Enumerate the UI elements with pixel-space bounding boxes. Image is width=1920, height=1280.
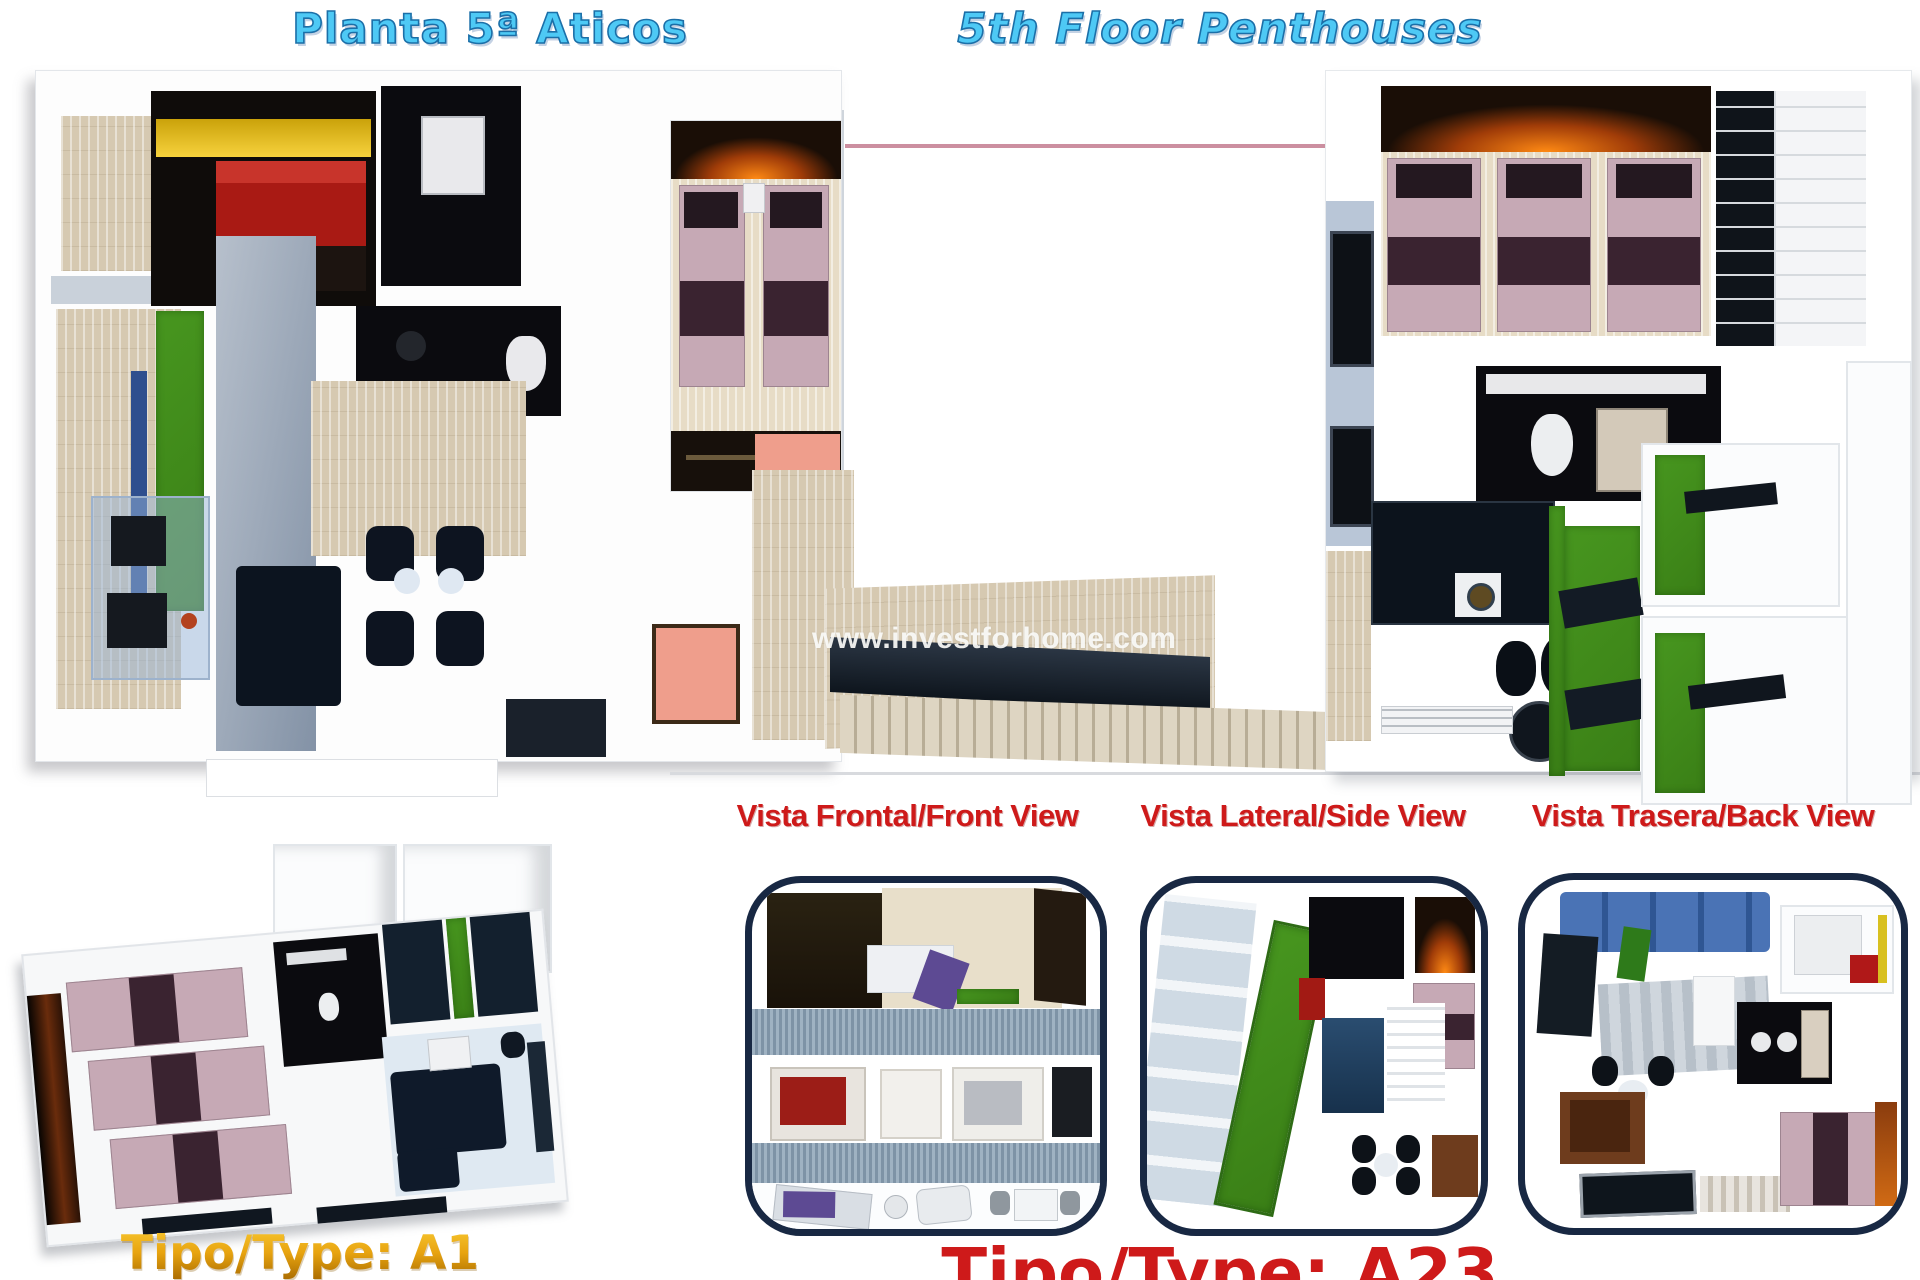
right-twin-bedroom [1381, 86, 1711, 336]
gold-light-strip [156, 119, 371, 157]
twin-bed [1607, 158, 1701, 332]
bottom-step [206, 759, 498, 797]
bathroom-1 [381, 86, 521, 286]
orange-glow-wardrobe [671, 121, 841, 179]
brown-room [1560, 1092, 1645, 1164]
orange-glow-wardrobe [1381, 86, 1711, 152]
logo-dot [181, 613, 197, 629]
watermark: www.investforhome.com [812, 622, 1142, 656]
purple-towel [783, 1191, 835, 1218]
chair [1396, 1135, 1420, 1163]
tiled-wall [1326, 551, 1371, 741]
bed-runner [129, 974, 180, 1046]
pillow [1506, 164, 1582, 198]
table [1014, 1189, 1058, 1221]
grass-wall [1655, 455, 1705, 595]
grass-patch [1565, 526, 1640, 771]
sunshade-panel [1564, 678, 1651, 730]
washing-machine [1455, 573, 1501, 617]
chair [1396, 1167, 1420, 1195]
bedroom-corner [1780, 905, 1894, 994]
page-title-english: 5th Floor Penthouses [880, 4, 1560, 53]
pillow [770, 192, 822, 228]
sunshade-panel [1558, 577, 1643, 628]
bathroom [1737, 1002, 1832, 1084]
facade-wall [1326, 201, 1374, 546]
orange-glow-strip [1875, 1102, 1897, 1206]
sink [1777, 1032, 1797, 1052]
window [1330, 426, 1374, 527]
brown-room [1432, 1135, 1478, 1197]
sink-unit [421, 116, 485, 195]
shower-tray [1801, 1010, 1829, 1078]
chair [1352, 1167, 1376, 1195]
bed-runner [151, 1053, 202, 1125]
front-view-panel [745, 876, 1107, 1236]
typeA1-floorplan-render [18, 836, 578, 1236]
white-stairs [1387, 1003, 1445, 1111]
paving [1700, 1176, 1790, 1212]
courtyard-void [842, 110, 1329, 590]
window-slab [506, 699, 606, 757]
dining-chair [436, 611, 484, 666]
appliance [111, 516, 166, 566]
chair [1060, 1191, 1080, 1215]
bed-runner [680, 281, 744, 336]
washer-door [1467, 583, 1495, 611]
nightstand [743, 183, 765, 213]
green-accent [1617, 926, 1652, 981]
sofa-chaise [397, 1147, 460, 1192]
salmon-cabinet [652, 624, 740, 724]
back-view-panel [1518, 873, 1908, 1235]
media-wall [1537, 933, 1599, 1037]
type-a1-label: Tipo/Type: A1 [90, 1226, 510, 1280]
bed [110, 1124, 292, 1209]
window [1330, 231, 1374, 367]
terrace-chair [915, 1184, 972, 1225]
bedroom-opening [952, 1067, 1044, 1141]
garden-panel [470, 912, 538, 1017]
dark-bed [1570, 1100, 1630, 1152]
balcony-band [752, 1143, 1100, 1183]
terrace-planter-box [1641, 616, 1850, 805]
plate [1374, 1153, 1398, 1177]
bed-runner [1608, 237, 1700, 285]
stove [427, 1036, 472, 1072]
glass-kitchenette [91, 496, 210, 680]
louver-steps [840, 695, 1360, 771]
balcony-band [752, 1009, 1100, 1055]
pillow [1616, 164, 1692, 198]
back-view-label: Vista Trasera/Back View [1498, 798, 1908, 834]
terrace-dining [990, 1185, 1085, 1225]
right-apartment-wing [1325, 70, 1912, 772]
window-slats [1579, 1170, 1696, 1218]
front-view-label: Vista Frontal/Front View [705, 798, 1110, 834]
pillow [1396, 164, 1472, 198]
pillow [684, 192, 738, 228]
toilet [1531, 414, 1573, 476]
appliance [107, 593, 167, 648]
page-title-spanish: Planta 5ª Aticos [180, 4, 800, 53]
yellow-sliver [1878, 915, 1887, 983]
twin-bed [1387, 158, 1481, 332]
white-shelf-wall [1774, 91, 1866, 346]
chair [1352, 1135, 1376, 1163]
salmon-block [755, 434, 840, 470]
twin-bed [1497, 158, 1591, 332]
bed-runner [1388, 237, 1480, 285]
bathroom [273, 933, 388, 1067]
bed-runner [1498, 237, 1590, 285]
chair [990, 1191, 1010, 1215]
side-view-label: Vista Lateral/Side View [1118, 798, 1488, 834]
twin-bed [763, 185, 829, 387]
chair [1592, 1056, 1618, 1086]
white-console [1381, 706, 1513, 734]
door-panel [1693, 976, 1735, 1046]
dining-set [356, 526, 506, 676]
plate [438, 568, 464, 594]
gray-bed [964, 1081, 1022, 1125]
garden-panel [382, 920, 450, 1025]
dark-partition [1034, 888, 1086, 1005]
sofa [390, 1063, 507, 1157]
dark-wardrobe-room [1309, 897, 1404, 979]
red-accent [1299, 978, 1325, 1020]
type-a23-label: Tipo/Type: A23 [940, 1234, 1500, 1280]
grass-wall [1655, 633, 1705, 793]
plate [394, 568, 420, 594]
outer-terrace-wall [1846, 361, 1912, 805]
side-view-panel [1140, 876, 1488, 1236]
dining-chair [366, 611, 414, 666]
bed-runner [172, 1131, 223, 1203]
vanity-counter [1486, 374, 1706, 394]
grass-sliver [957, 989, 1019, 1004]
sun-lounger [772, 1184, 872, 1230]
glow-room [1415, 897, 1475, 973]
sink-shelf [286, 948, 347, 965]
black-chair [1496, 641, 1536, 696]
bed [88, 1046, 270, 1131]
dining-set [1352, 1135, 1427, 1195]
bedroom-opening [770, 1067, 866, 1141]
sofa [236, 566, 341, 706]
dark-wardrobe [1716, 91, 1774, 346]
bed-runner [764, 281, 828, 336]
dark-opening [1052, 1067, 1092, 1137]
red-bed [780, 1077, 846, 1125]
apartment-platform [21, 909, 569, 1248]
twin-bed [679, 185, 745, 387]
toilet [318, 992, 340, 1022]
vertical-garden [1549, 506, 1565, 776]
bed [1780, 1112, 1882, 1206]
terrace-planter-box [1641, 443, 1840, 607]
bedroom-opening [880, 1069, 942, 1139]
shower-head [396, 331, 426, 361]
red-pillow [1850, 955, 1880, 983]
sink [1751, 1032, 1771, 1052]
bed [66, 967, 248, 1052]
chair [1648, 1056, 1674, 1086]
side-table [884, 1195, 908, 1219]
bed-runner [1813, 1113, 1848, 1205]
terrace-floor [752, 1183, 1100, 1229]
navy-panel [1322, 1018, 1384, 1113]
kitchen-counter [1371, 501, 1555, 625]
window-slat [316, 1196, 447, 1223]
main-floorplan-render [30, 62, 1915, 795]
brochure-page: Planta 5ª Aticos 5th Floor Penthouses [0, 0, 1920, 1280]
armchair [500, 1031, 526, 1059]
kitchen-strip [767, 893, 882, 1008]
